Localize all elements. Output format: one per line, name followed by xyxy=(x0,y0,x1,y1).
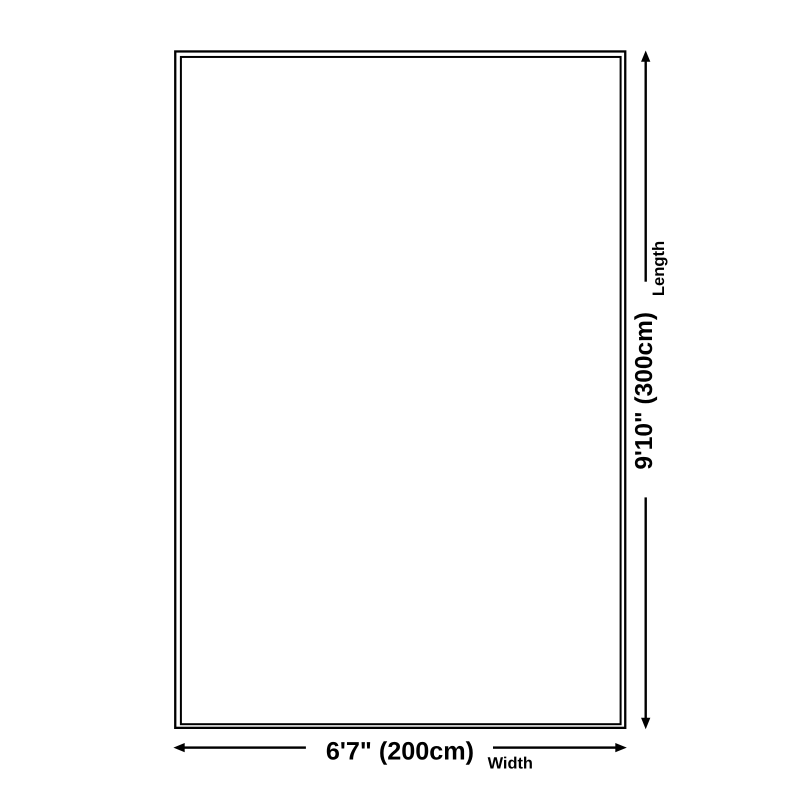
svg-text:Length: Length xyxy=(649,241,668,296)
svg-text:Width: Width xyxy=(488,755,533,773)
svg-text:6'7" (200cm): 6'7" (200cm) xyxy=(326,738,474,766)
svg-text:9'10" (300cm): 9'10" (300cm) xyxy=(631,312,658,470)
